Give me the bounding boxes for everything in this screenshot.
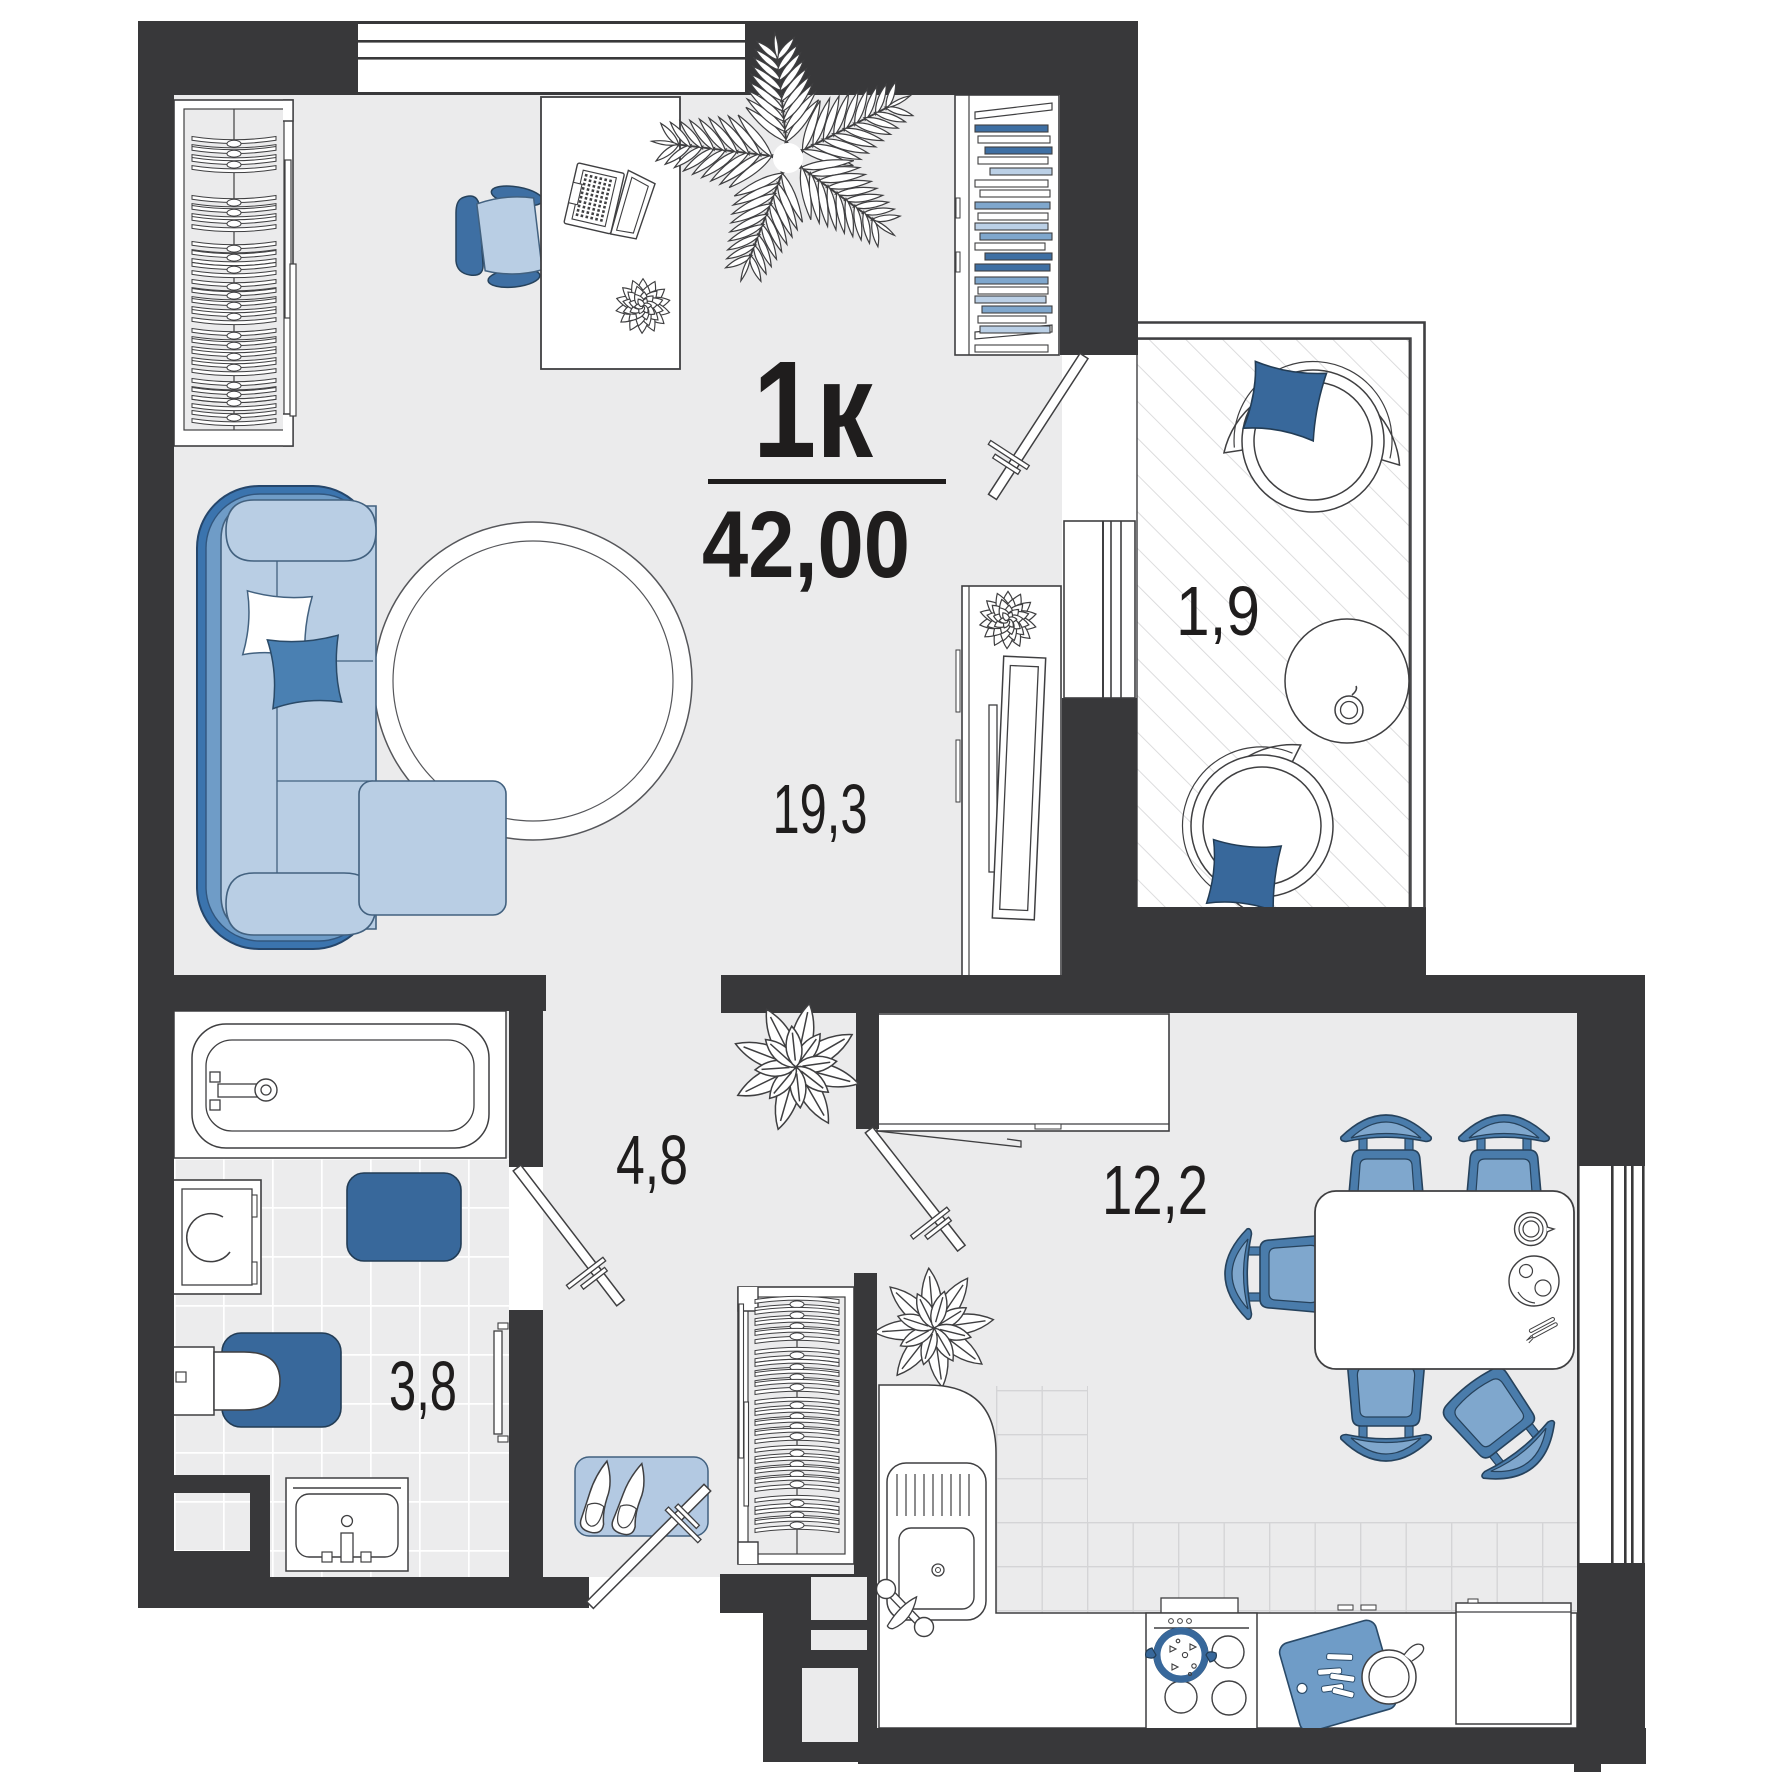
svg-text:3,8: 3,8 [389,1347,457,1425]
svg-text:19,3: 19,3 [773,770,868,848]
svg-text:42,00: 42,00 [702,492,910,598]
svg-text:1к: 1к [753,333,874,487]
svg-text:4,8: 4,8 [616,1121,688,1199]
svg-text:1,9: 1,9 [1176,572,1260,650]
svg-text:12,2: 12,2 [1102,1151,1208,1229]
